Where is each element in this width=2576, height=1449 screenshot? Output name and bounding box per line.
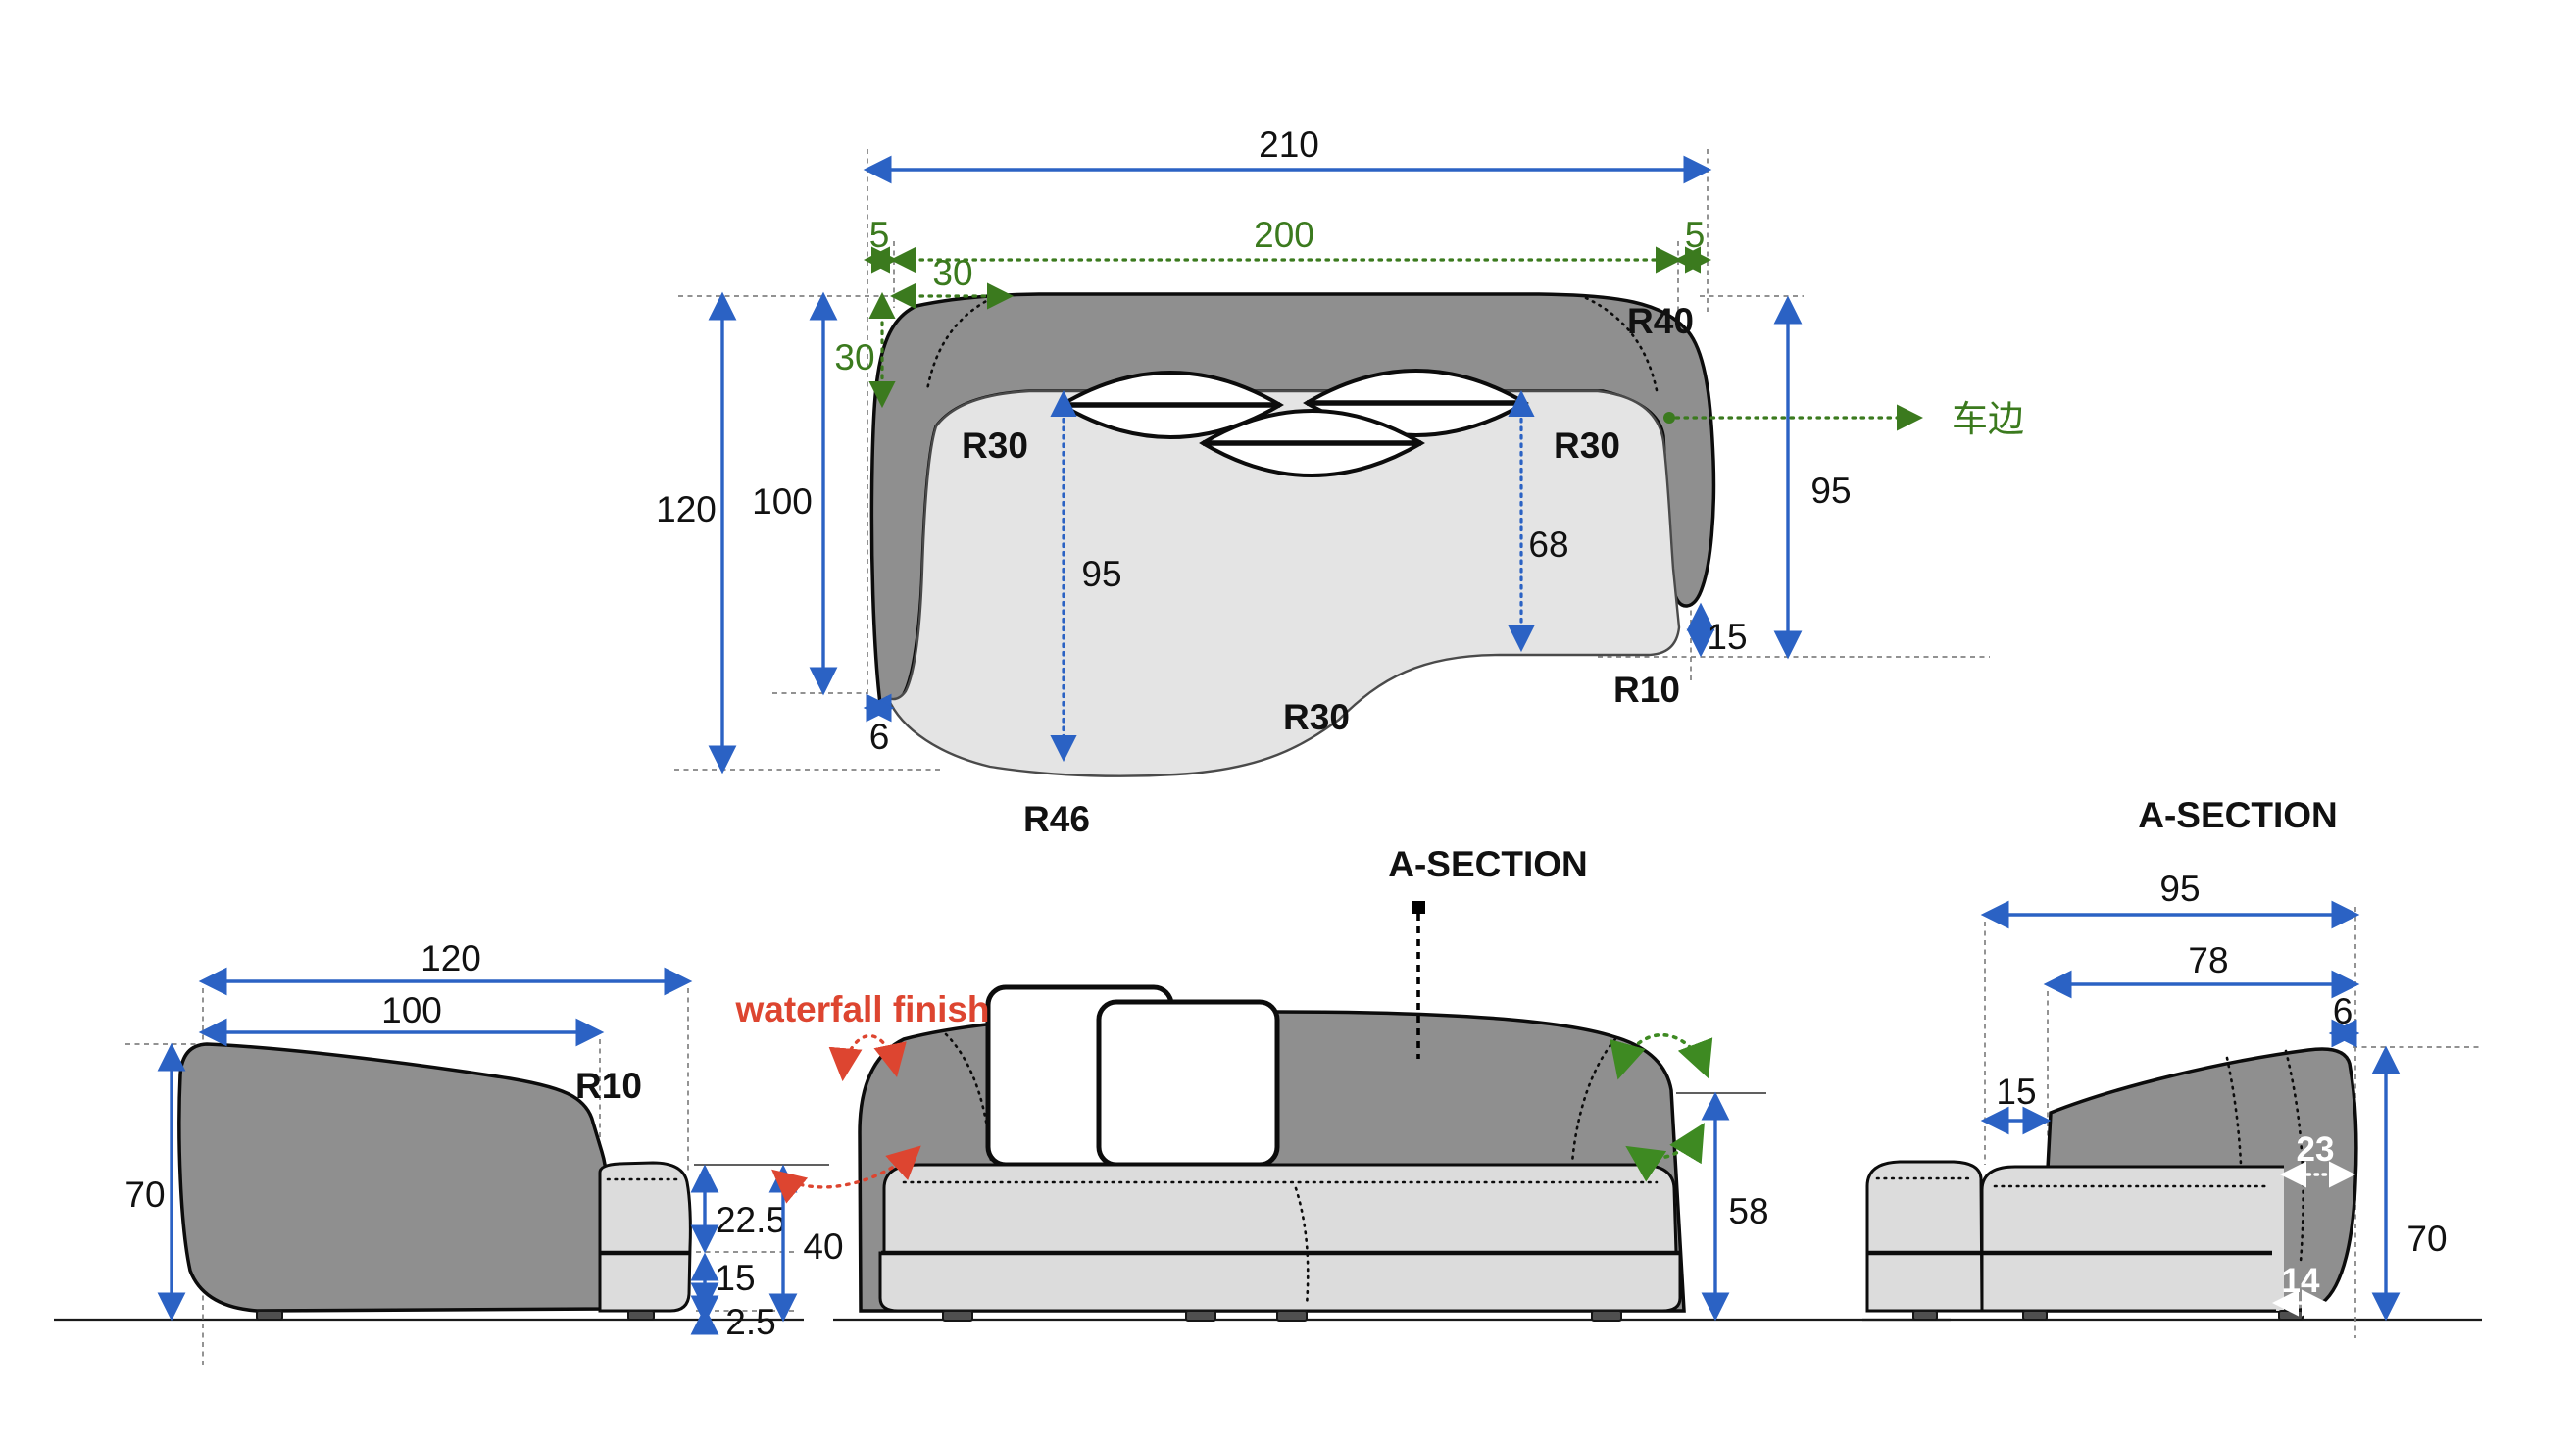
dim-95-right-label: 95: [1810, 471, 1851, 511]
radius-side-r10-label: R10: [575, 1066, 642, 1106]
dim-5-left-label: 5: [869, 215, 890, 255]
dim-200-label: 200: [1254, 215, 1314, 255]
front-pillow-right: [1099, 1002, 1277, 1165]
front-leg-1: [943, 1311, 972, 1321]
sofa-dimension-drawing: 210 5 200 5 30 30 120 100 95 68 95 15 6 …: [0, 0, 2576, 1449]
radius-r30-right-label: R30: [1554, 425, 1620, 466]
radius-r46-label: R46: [1023, 799, 1090, 839]
dim-sec-15-label: 15: [1996, 1072, 2036, 1112]
waterfall-finish-label: waterfall finish: [734, 989, 989, 1029]
top-view: 210 5 200 5 30 30 120 100 95 68 95 15 6 …: [656, 125, 2024, 839]
dim-sec-6-label: 6: [2333, 991, 2353, 1031]
dim-side-40-label: 40: [803, 1226, 843, 1267]
dim-210-label: 210: [1259, 125, 1319, 165]
dim-95-left-label: 95: [1081, 554, 1121, 594]
side-view-left: 120 100 R10 70 22.5 15 2.5 40: [54, 938, 844, 1365]
dim-sec-23-label: 23: [2297, 1130, 2335, 1169]
dim-sec-14-label: 14: [2282, 1262, 2320, 1300]
dim-side-70-label: 70: [124, 1174, 165, 1215]
front-leg-3: [1277, 1311, 1307, 1321]
dim-side-120-label: 120: [421, 938, 481, 978]
dim-30-horizontal-label: 30: [932, 253, 972, 293]
side-leg-back: [257, 1311, 282, 1320]
front-leg-2: [1186, 1311, 1215, 1321]
side-seat-cushion: [600, 1163, 690, 1311]
radius-r10-label: R10: [1613, 670, 1680, 710]
dim-100-label: 100: [752, 481, 813, 522]
side-backrest-body: [179, 1044, 609, 1311]
dim-side-15-label: 15: [715, 1258, 755, 1298]
section-ottoman: [1867, 1162, 1982, 1311]
dim-6-label: 6: [869, 717, 890, 757]
section-leg-2: [2023, 1311, 2047, 1320]
side-leg-front: [628, 1311, 654, 1320]
technical-drawing-canvas: 210 5 200 5 30 30 120 100 95 68 95 15 6 …: [0, 0, 2576, 1449]
dim-68-label: 68: [1528, 525, 1568, 565]
stitch-note-label: 车边: [1952, 399, 2024, 439]
dim-15-top-label: 15: [1707, 617, 1747, 657]
dim-sec-95-label: 95: [2159, 869, 2200, 909]
dim-58-label: 58: [1728, 1191, 1768, 1231]
radius-r30-bottom-label: R30: [1283, 697, 1350, 737]
dim-sec-70-label: 70: [2406, 1219, 2447, 1259]
section-leg-3: [2279, 1311, 2303, 1320]
section-leg-1: [1913, 1311, 1937, 1320]
section-title: A-SECTION: [2138, 795, 2338, 835]
front-seat-cushion: [884, 1165, 1676, 1253]
dim-30-vertical-label: 30: [834, 337, 874, 377]
stitch-note-dot: [1663, 412, 1675, 424]
section-marker-square: [1412, 901, 1425, 914]
dim-120-label: 120: [656, 489, 717, 529]
front-view: waterfall finish A-SECTION 58: [734, 844, 1951, 1321]
section-view: A-SECTION 95 78 6 15 70 23 14: [1862, 795, 2482, 1338]
radius-r30-left-label: R30: [962, 425, 1028, 466]
dim-sec-78-label: 78: [2188, 940, 2228, 980]
dim-side-100-label: 100: [381, 990, 442, 1030]
dim-5-right-label: 5: [1685, 215, 1706, 255]
dim-side-2-5-label: 2.5: [725, 1302, 775, 1342]
front-leg-4: [1592, 1311, 1621, 1321]
front-base: [880, 1253, 1680, 1311]
dim-side-22-5-label: 22.5: [716, 1200, 786, 1240]
radius-r40-label: R40: [1627, 301, 1694, 341]
section-marker-label: A-SECTION: [1388, 844, 1588, 884]
section-seat-fill: [1982, 1167, 2284, 1311]
